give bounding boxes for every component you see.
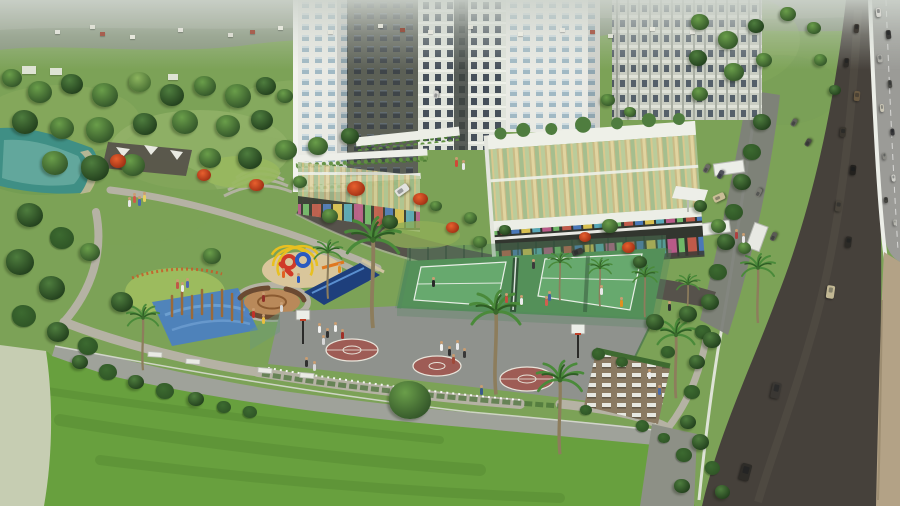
tree [12,110,38,133]
village-house [90,25,95,29]
village-house [400,28,405,32]
highway-car [885,29,891,38]
tree [382,215,398,229]
tree [701,294,719,310]
tree [72,355,88,369]
tree [711,219,726,233]
tree [17,203,43,226]
highway-car [880,104,885,112]
person [532,262,535,269]
person [252,311,255,318]
tree [308,137,328,155]
tree [601,94,615,107]
tree [111,292,133,312]
tree [756,53,772,67]
tree [188,392,204,406]
highway-car [893,219,896,225]
highway-car [882,152,887,159]
person [545,299,548,306]
flowering-tree [197,169,211,181]
person [668,304,671,311]
tree [718,31,738,49]
tree [780,7,796,21]
tree [592,348,605,360]
person [334,325,337,332]
tree [602,219,618,233]
tree [679,306,697,322]
flowering-tree [446,222,459,233]
person [280,305,283,312]
person [305,360,308,367]
tree [633,256,647,269]
highway-car [888,80,893,88]
highway-car [877,54,883,62]
person [463,351,466,358]
person [322,338,325,345]
village-house [378,24,383,28]
person [520,298,523,305]
person [282,271,285,278]
village-house [22,66,36,74]
person [341,332,344,339]
tree [661,346,675,359]
service-road-car [849,165,856,176]
tree [203,248,221,264]
highway-car [884,197,888,203]
tree [6,249,34,274]
tree [12,305,36,327]
village-house [55,30,60,34]
tree [676,448,692,462]
tree [47,322,69,342]
person [548,294,551,301]
tree [692,87,708,101]
service-road-car [854,91,861,101]
person [133,196,136,203]
tree [689,50,707,66]
village-house [250,30,255,34]
village-house [50,68,62,75]
tree [499,225,511,236]
tree [709,264,727,280]
village-house [100,32,105,36]
tree [39,276,65,299]
person [480,388,483,395]
person [620,300,623,307]
tree [42,151,68,174]
highway-car [875,7,881,16]
person [313,364,316,371]
tree [194,76,216,96]
village-house [608,34,613,38]
tree [128,375,144,389]
tree [717,234,735,250]
tree [129,72,151,92]
tree [705,461,720,475]
tree [225,84,251,107]
tree [81,155,109,180]
tree [616,357,628,368]
tree [646,314,664,330]
village-house [130,35,135,39]
person [462,163,465,170]
person [452,357,455,364]
village-house [428,30,433,34]
tree [99,364,117,380]
person [181,285,184,292]
highway-car [891,174,896,181]
tree [251,110,273,130]
person [176,282,179,289]
tree [28,81,52,103]
person [262,317,265,324]
service-road-car [825,285,835,299]
tree [277,89,293,103]
village-house [178,28,183,32]
tree [473,236,487,249]
service-road-car [853,23,859,32]
tree [243,406,257,419]
person [456,343,459,350]
person [432,280,435,287]
village-house [278,26,283,30]
village-house [690,30,695,34]
tree [715,485,730,499]
person [138,199,141,206]
tree [807,22,821,35]
tree [829,85,841,96]
tree [748,19,764,33]
tree [293,176,307,189]
glass-curtain-wall [489,135,702,221]
tree [2,69,22,87]
person [455,160,458,167]
person [318,326,321,333]
flowering-tree [622,242,635,253]
tree [743,144,761,160]
tree [703,332,721,348]
service-road-car [839,127,846,138]
person [262,295,265,302]
tree [580,405,592,416]
tree [80,243,100,261]
tree [464,212,477,224]
tree [78,337,98,355]
tree [691,14,709,30]
tree [430,201,442,212]
service-road-car [844,236,851,248]
tree [86,117,114,142]
highway-car [890,128,895,135]
tree [684,385,700,399]
tree [133,113,157,135]
village-house [560,28,565,32]
person [735,232,738,239]
tree [753,114,771,130]
service-road-car [843,57,849,66]
person [143,195,146,202]
person [648,372,651,379]
tree [50,117,74,139]
tree [733,174,751,190]
village-house [168,74,178,80]
tree [256,77,276,95]
flowering-tree [249,179,264,192]
person [128,200,131,207]
tree [238,147,262,169]
tree [322,209,338,223]
flowering-tree [110,154,126,168]
tree [61,74,83,94]
tree [217,401,231,414]
tree [389,381,431,419]
tree [341,128,359,144]
person [186,281,189,288]
tree [689,355,705,369]
tree [216,115,240,137]
village-house [328,30,333,34]
tree [725,204,743,220]
tree [658,433,670,444]
person [338,266,341,273]
pale-water-channel [0,345,51,506]
village-house [518,32,523,36]
tree [92,83,118,106]
village-house [650,27,655,31]
village-house [468,25,473,29]
tree [692,434,709,449]
tree [724,63,744,81]
tree [814,54,827,66]
person [658,388,661,395]
person [505,296,508,303]
tree [275,140,297,160]
person [448,349,451,356]
tree [680,415,696,429]
tree [172,110,198,133]
person [326,331,329,338]
tree [624,107,636,118]
tree [694,200,707,212]
village-house [228,33,233,37]
person [742,236,745,243]
person [297,276,300,283]
flowering-tree [413,193,428,206]
tree [636,420,649,432]
service-road-car [834,200,841,212]
tree [156,383,174,399]
tree [738,242,751,254]
tree [674,479,690,493]
aerial-render-scene [0,0,900,506]
person [440,344,443,351]
tree [50,227,74,249]
tree [199,148,221,168]
tree [160,84,184,106]
person [600,288,603,295]
village-house [590,30,595,34]
